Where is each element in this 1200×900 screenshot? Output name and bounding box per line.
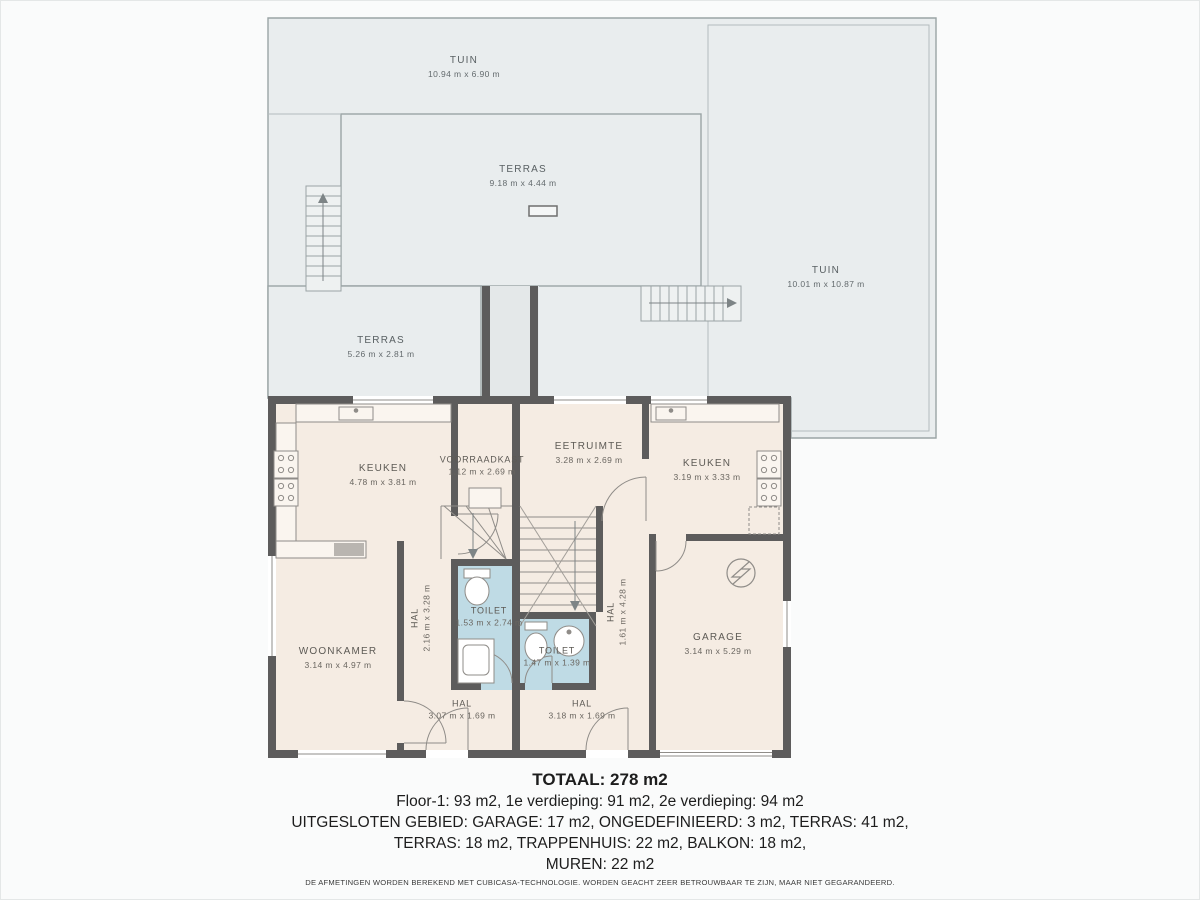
outdoor-stairs-left — [306, 186, 341, 291]
label-terras-main: TERRAS9.18 m x 4.44 m — [490, 164, 557, 188]
pantry-fixtures — [469, 488, 501, 508]
disclaimer-text: DE AFMETINGEN WORDEN BEREKEND MET CUBICA… — [1, 878, 1199, 887]
toilet-tank-icon — [525, 622, 547, 630]
label-keuken-right: KEUKEN3.19 m x 3.33 m — [674, 458, 741, 482]
outdoor-areas — [268, 18, 936, 438]
label-keuken-left: KEUKEN4.78 m x 3.81 m — [350, 463, 417, 487]
floor-plan-page: TUIN10.94 m x 6.90 m TERRAS9.18 m x 4.44… — [0, 0, 1200, 900]
building-floors — [272, 400, 787, 754]
area-summary: TOTAAL: 278 m2 Floor-1: 93 m2, 1e verdie… — [1, 770, 1199, 874]
toilet-bowl-icon — [465, 577, 489, 605]
label-hal-left: HAL2.16 m x 3.28 m — [410, 585, 433, 652]
entrance-shaft — [482, 286, 539, 398]
stove-icon — [757, 451, 781, 478]
label-terras-left: TERRAS5.26 m x 2.81 m — [348, 335, 415, 359]
label-garage: GARAGE3.14 m x 5.29 m — [685, 632, 752, 656]
floors-line: Floor-1: 93 m2, 1e verdieping: 91 m2, 2e… — [1, 793, 1199, 811]
label-hal-bottom-left: HAL3.07 m x 1.69 m — [429, 699, 496, 722]
label-voorraadkast: VOORRAADKAST1.12 m x 2.69 m — [440, 455, 525, 478]
label-toilet-lower: TOILET1.47 m x 1.39 m — [524, 646, 591, 669]
total-area: TOTAAL: 278 m2 — [1, 770, 1199, 790]
excluded-line-2: TERRAS: 18 m2, TRAPPENHUIS: 22 m2, BALKO… — [1, 835, 1199, 853]
outdoor-stairs-right — [641, 286, 741, 321]
label-tuin-top: TUIN10.94 m x 6.90 m — [428, 55, 500, 79]
excluded-line-1: UITGESLOTEN GEBIED: GARAGE: 17 m2, ONGED… — [1, 814, 1199, 832]
label-eetruimte: EETRUIMTE3.28 m x 2.69 m — [555, 441, 624, 465]
stove-icon — [757, 479, 781, 506]
label-hal-right: HAL1.61 m x 4.28 m — [606, 579, 629, 646]
label-tuin-right: TUIN10.01 m x 10.87 m — [787, 265, 864, 289]
stove-icon — [274, 479, 298, 506]
label-woonkamer: WOONKAMER3.14 m x 4.97 m — [299, 646, 378, 670]
excluded-line-3: MUREN: 22 m2 — [1, 856, 1199, 874]
label-hal-bottom-right: HAL3.18 m x 1.69 m — [549, 699, 616, 722]
stove-icon — [274, 451, 298, 478]
label-toilet-upper: TOILET1.53 m x 2.74 m — [456, 606, 523, 629]
